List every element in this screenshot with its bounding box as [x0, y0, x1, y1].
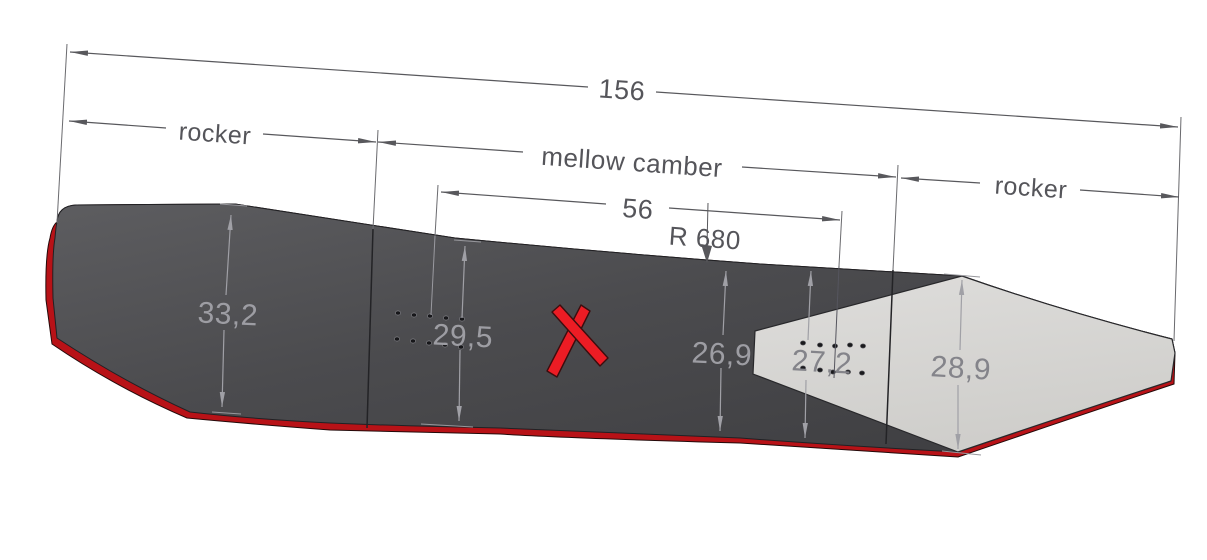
- dim-rocker-right-a: [901, 178, 980, 183]
- nose-width-label: 33,2: [197, 296, 259, 332]
- dim-56-b: [669, 208, 840, 220]
- sidecut-radius-label: R 680: [668, 221, 742, 256]
- mellow-camber-label: mellow camber: [540, 141, 723, 183]
- dim-156-right: [656, 92, 1178, 127]
- dim-rocker-right-b: [1080, 190, 1179, 197]
- front-width-label: 29,5: [432, 318, 494, 354]
- rocker-right-label: rocker: [994, 172, 1068, 205]
- diagram-canvas: 156 rocker mellow camber rocker 56 R 680…: [0, 0, 1207, 560]
- dim-rocker-left-b: [263, 134, 376, 142]
- rocker-left-label: rocker: [178, 118, 252, 151]
- dim-camber-b: [742, 167, 896, 177]
- dim-camber-a: [378, 142, 523, 152]
- ext-line-boundary-right-upper: [893, 165, 898, 270]
- ext-line-stance-left-upper: [435, 185, 438, 236]
- stance-width-label: 56: [621, 193, 654, 225]
- dim-156-left: [70, 52, 588, 87]
- ext-line-boundary-left-upper: [373, 130, 378, 229]
- snowboard-dimension-diagram: 156 rocker mellow camber rocker 56 R 680…: [0, 0, 1207, 560]
- ext-line-stance-right-upper: [839, 211, 842, 266]
- waist-width-label: 26,9: [691, 336, 753, 372]
- rear-width-label: 27,2: [791, 344, 853, 381]
- ext-line-right-end: [1174, 117, 1181, 341]
- dim-56-a: [441, 192, 606, 204]
- tail-width-label: 28,9: [930, 350, 992, 387]
- dim-rocker-left-a: [69, 121, 166, 128]
- overall-length-label: 156: [598, 73, 646, 106]
- ext-line-left-end: [57, 44, 67, 223]
